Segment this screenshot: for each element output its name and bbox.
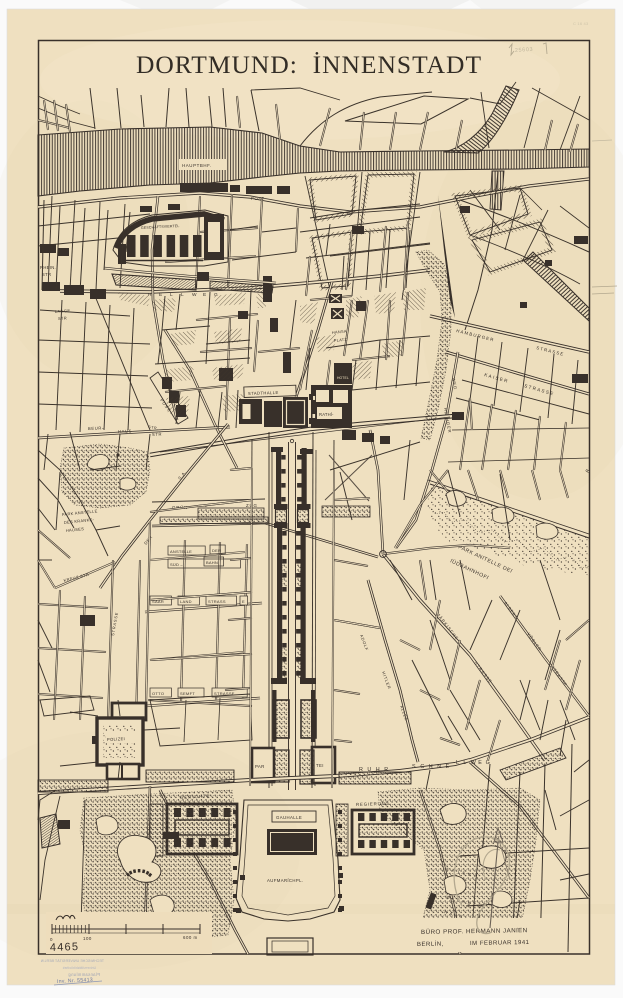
- svg-text:25603: 25603: [515, 47, 534, 54]
- svg-text:Universitätsbibliothek: Universitätsbibliothek: [62, 966, 96, 970]
- svg-text:PAR: PAR: [255, 764, 265, 769]
- svg-text:DER: DER: [212, 548, 221, 553]
- svg-text:POLIZEI: POLIZEI: [107, 736, 125, 742]
- svg-text:STADTHALLE: STADTHALLE: [248, 390, 279, 396]
- svg-text:STR: STR: [152, 432, 162, 437]
- svg-text:E: E: [159, 292, 163, 298]
- svg-text:TECHNISCHE UNIVERSITÄT BERLIN: TECHNISCHE UNIVERSITÄT BERLIN: [40, 959, 104, 963]
- svg-text:GAUHALLE: GAUHALLE: [276, 815, 302, 820]
- svg-text:L: L: [170, 292, 173, 298]
- svg-text:E: E: [203, 292, 207, 298]
- svg-text:100: 100: [83, 936, 92, 941]
- svg-text:DORTMUND: İNNENSTADT: DORTMUND: İNNENSTADT: [136, 50, 482, 79]
- svg-text:H: H: [148, 292, 152, 298]
- svg-text:L: L: [181, 292, 184, 298]
- svg-text:G: G: [214, 292, 218, 298]
- svg-text:AUFMARſCHPL.: AUFMARſCHPL.: [267, 878, 304, 883]
- svg-text:ANSTELLE: ANSTELLE: [170, 549, 192, 554]
- svg-text:STR: STR: [42, 272, 51, 277]
- svg-text:L: L: [463, 760, 467, 766]
- svg-text:C 16 43: C 16 43: [573, 21, 589, 26]
- svg-text:S: S: [412, 764, 416, 770]
- svg-text:HAUS: HAUS: [118, 429, 132, 434]
- svg-text:HOTEL: HOTEL: [337, 376, 349, 380]
- svg-text:BEUR–: BEUR–: [88, 425, 105, 431]
- svg-text:W: W: [192, 292, 197, 298]
- svg-text:600 m: 600 m: [183, 935, 198, 940]
- svg-text:TEI: TEI: [316, 763, 324, 768]
- svg-text:HAUPTBHF.: HAUPTBHF.: [182, 163, 212, 168]
- svg-text:SÜD –: SÜD –: [170, 562, 183, 567]
- svg-text:N: N: [437, 764, 441, 770]
- svg-text:H: H: [429, 764, 433, 770]
- svg-text:SEMFT: SEMFT: [180, 691, 195, 696]
- svg-text:RATHſ-: RATHſ-: [319, 412, 334, 417]
- svg-text:E: E: [446, 764, 450, 770]
- svg-text:E: E: [242, 599, 245, 604]
- svg-text:W: W: [471, 760, 477, 766]
- svg-text:C: C: [420, 764, 424, 770]
- svg-text:LAND: LAND: [180, 599, 192, 604]
- svg-text:STR: STR: [58, 315, 68, 321]
- svg-text:Plansammlung: Plansammlung: [68, 972, 100, 977]
- svg-text:IM FEBRUAR 1941: IM FEBRUAR 1941: [470, 940, 530, 947]
- svg-text:BERLİN,: BERLİN,: [417, 941, 444, 948]
- svg-text:E: E: [478, 760, 482, 766]
- svg-text:STRASS: STRASS: [208, 599, 226, 604]
- svg-text:OTTO: OTTO: [152, 691, 164, 696]
- svg-text:BAHN: BAHN: [206, 560, 218, 565]
- svg-text:4465: 4465: [50, 941, 80, 954]
- svg-text:L: L: [456, 760, 460, 766]
